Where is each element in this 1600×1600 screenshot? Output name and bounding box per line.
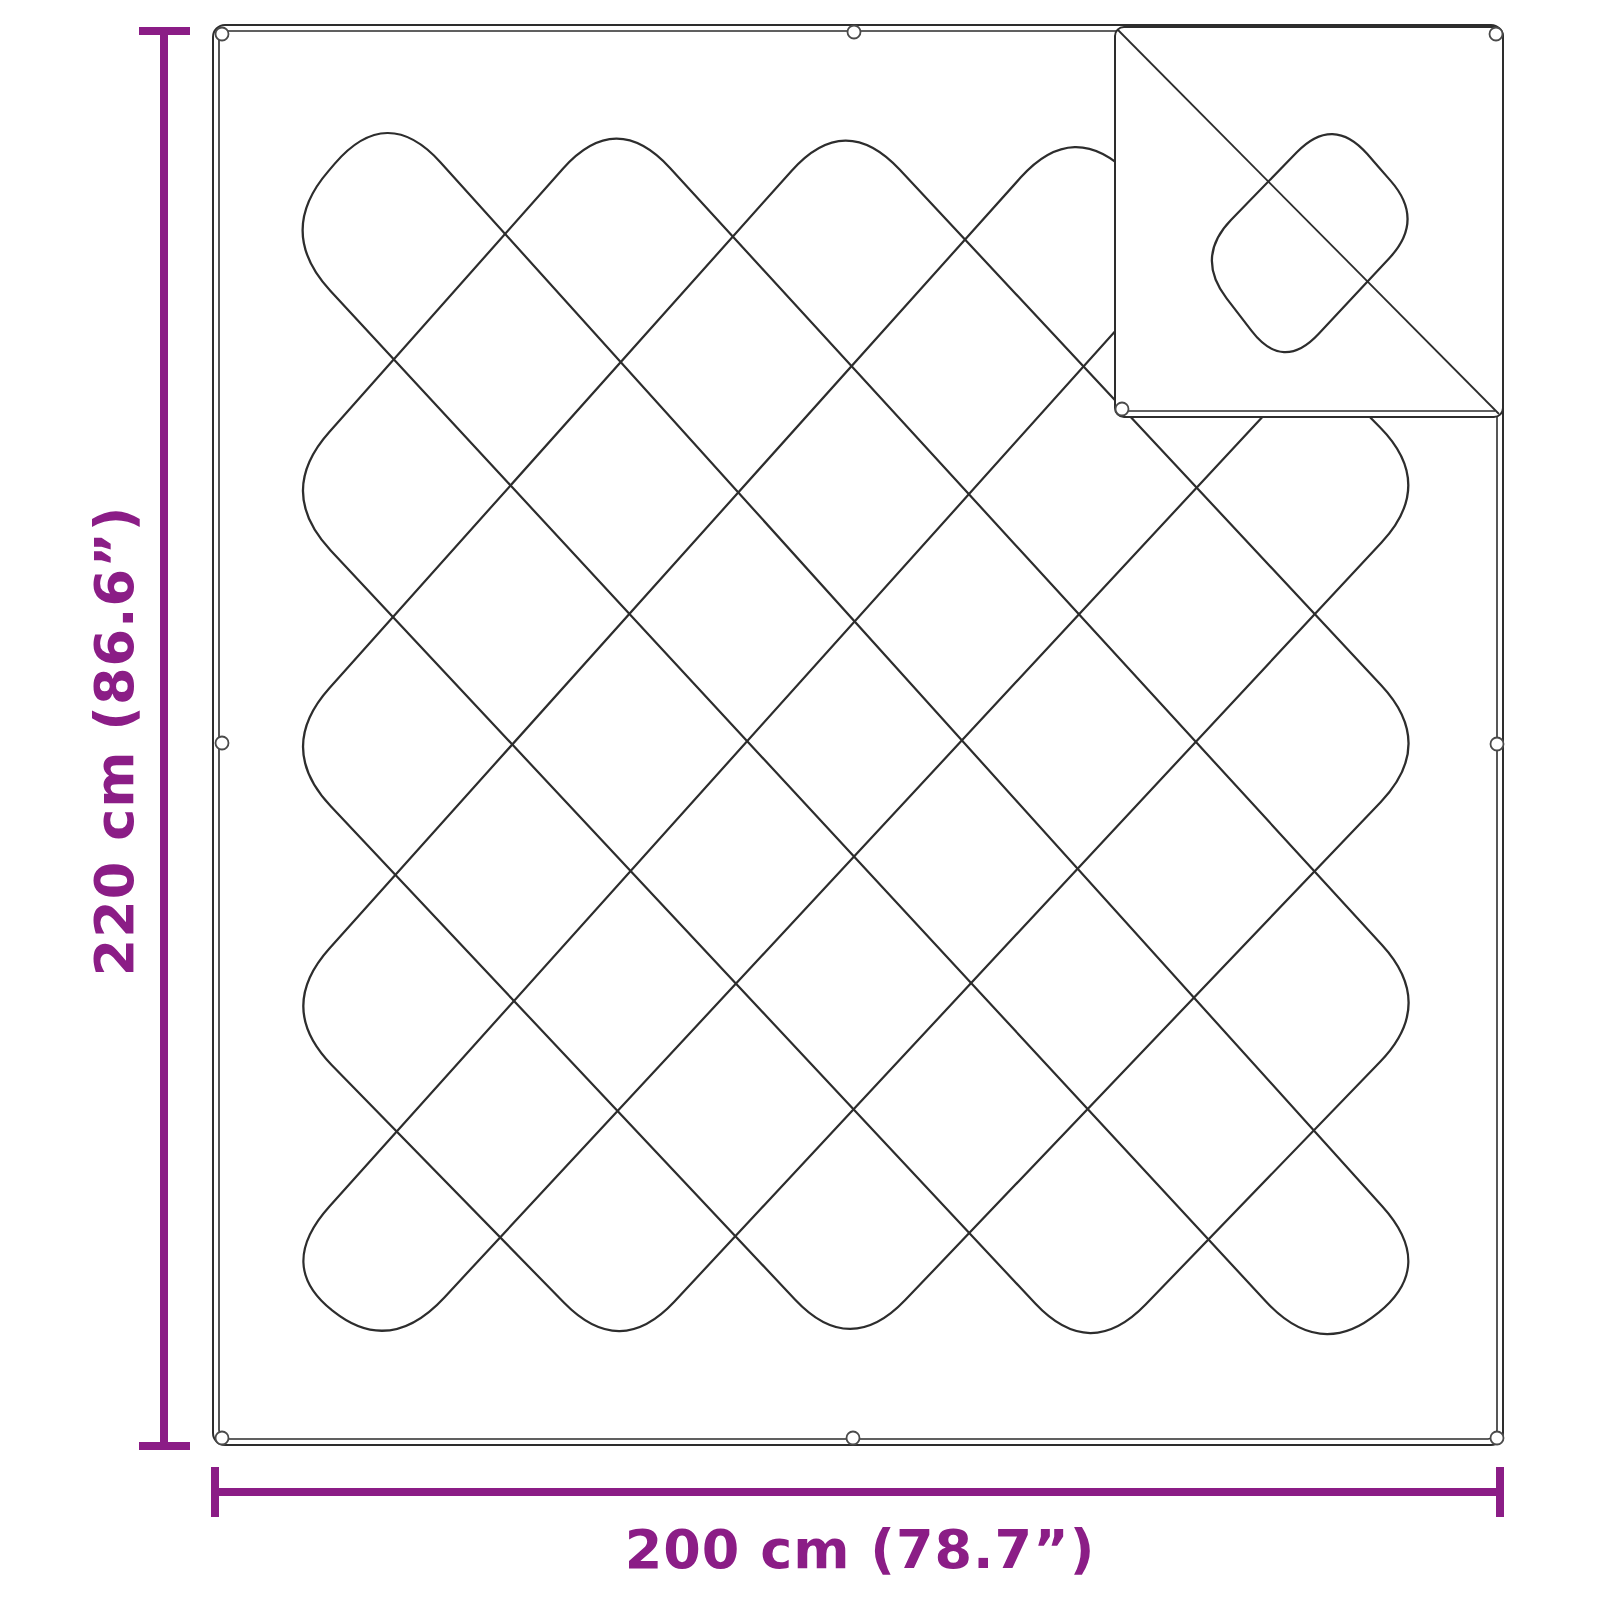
eyelet-grommet-icon: [216, 28, 229, 41]
width-dimension-line: [215, 1467, 1500, 1517]
eyelet-grommet-icon: [1491, 738, 1504, 751]
eyelet-grommet-icon: [847, 1432, 860, 1445]
eyelet-grommet-icon: [848, 26, 861, 39]
diagram-svg: 220 cm (86.6”) 200 cm (78.7”): [0, 0, 1600, 1600]
eyelet-grommet-icon: [1490, 28, 1503, 41]
eyelet-grommet-icon: [1491, 1432, 1504, 1445]
width-dimension-label: 200 cm (78.7”): [625, 1518, 1096, 1581]
height-dimension-label: 220 cm (86.6”): [83, 506, 146, 977]
height-dimension-line: [139, 31, 190, 1446]
eyelet-grommet-icon: [216, 737, 229, 750]
blanket-dimension-diagram: 220 cm (86.6”) 200 cm (78.7”): [0, 0, 1600, 1600]
corner-flap: [1115, 27, 1503, 417]
eyelet-grommet-icon: [1116, 403, 1129, 416]
eyelet-grommet-icon: [216, 1432, 229, 1445]
